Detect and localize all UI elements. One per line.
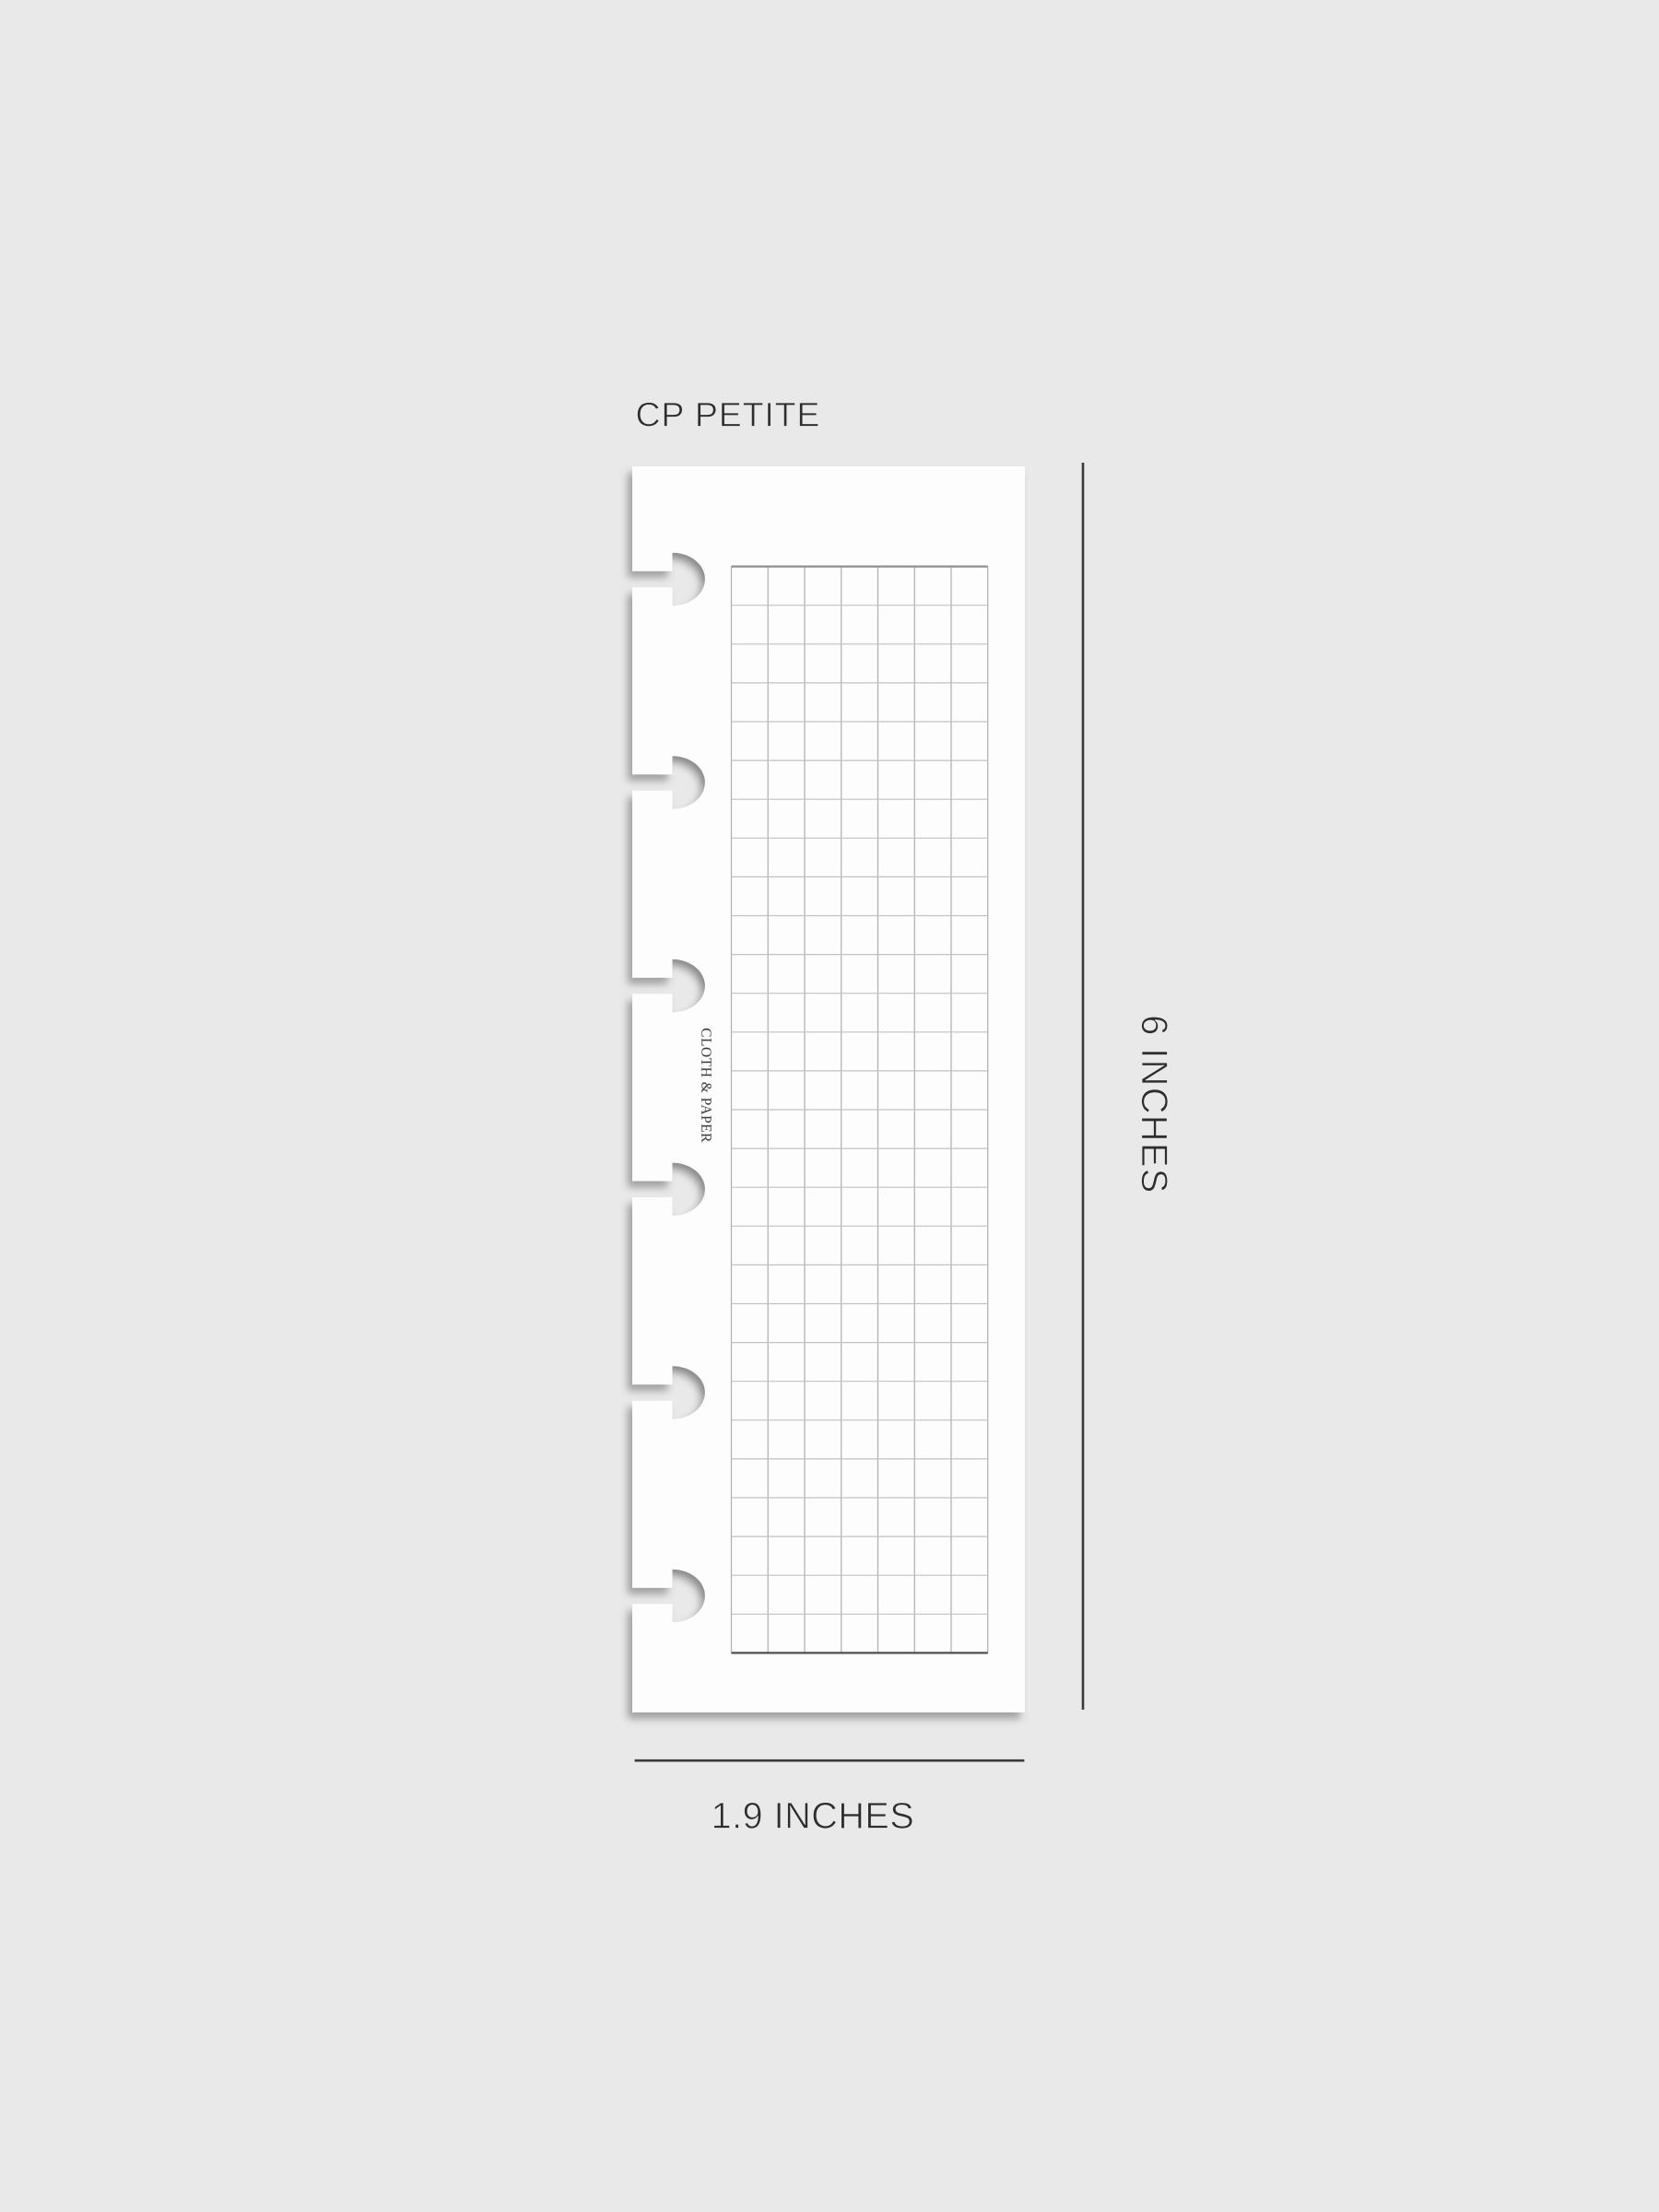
svg-text:6 INCHES: 6 INCHES [1134,1015,1174,1194]
svg-text:1.9 INCHES: 1.9 INCHES [712,1796,915,1837]
svg-text:CLOTH & PAPER: CLOTH & PAPER [698,1028,713,1143]
svg-text:CP PETITE: CP PETITE [636,395,821,434]
